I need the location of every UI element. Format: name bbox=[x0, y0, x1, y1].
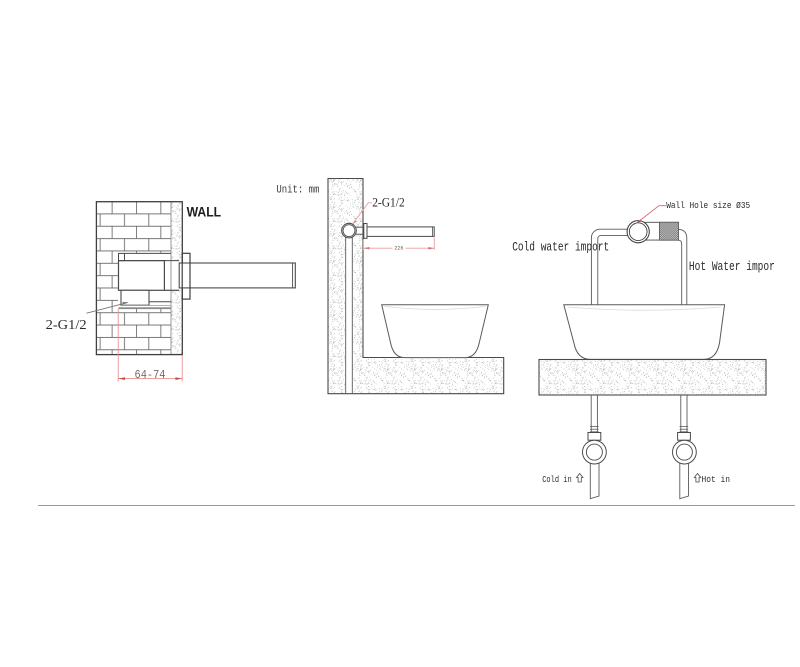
svg-text:Wall Hole size Ø35: Wall Hole size Ø35 bbox=[666, 200, 750, 211]
svg-text:Hot Water impor: Hot Water impor bbox=[689, 260, 775, 274]
svg-text:WALL: WALL bbox=[187, 205, 222, 220]
svg-text:2-G1/2: 2-G1/2 bbox=[46, 318, 87, 333]
svg-text:64-74: 64-74 bbox=[135, 369, 166, 382]
svg-text:Unit: mm: Unit: mm bbox=[276, 185, 319, 197]
svg-text:Cold in: Cold in bbox=[542, 474, 572, 485]
svg-text:Hot in: Hot in bbox=[702, 474, 731, 485]
svg-text:226: 226 bbox=[394, 246, 403, 252]
svg-text:Cold water import: Cold water import bbox=[512, 240, 609, 255]
svg-text:2-G1/2: 2-G1/2 bbox=[372, 195, 405, 209]
